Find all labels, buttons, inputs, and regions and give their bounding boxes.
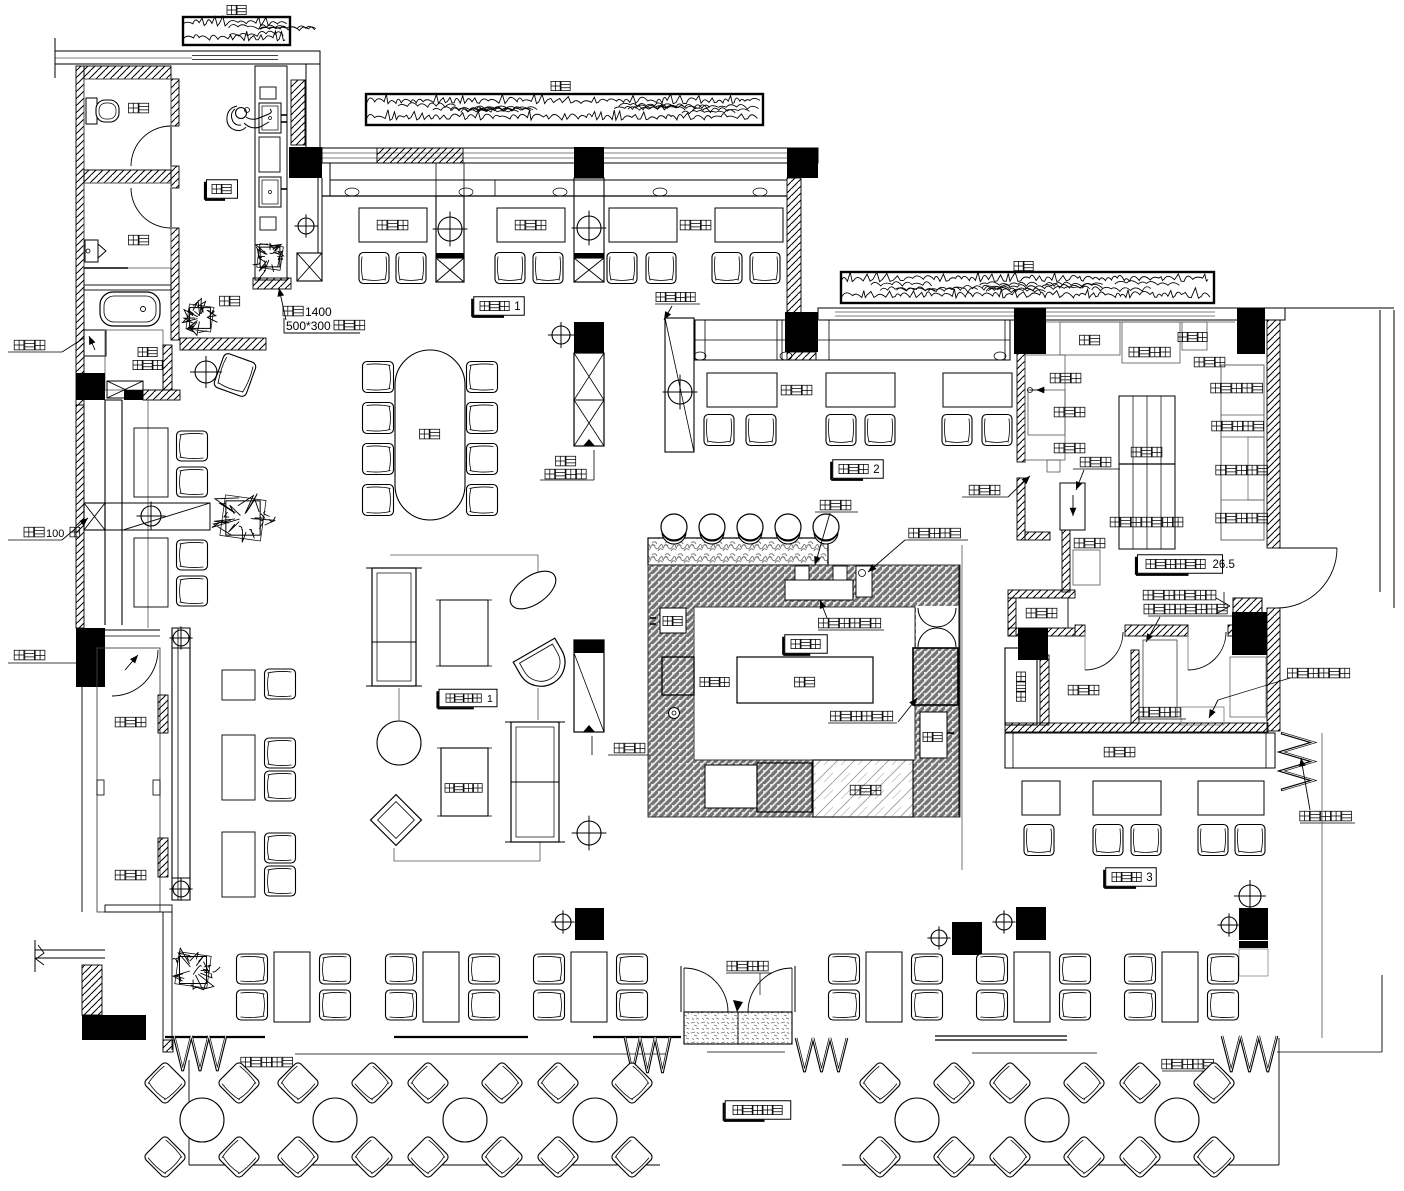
svg-text:1: 1 (487, 693, 493, 705)
svg-text:26.5: 26.5 (1213, 559, 1235, 571)
svg-text:3: 3 (1146, 872, 1152, 884)
svg-text:1: 1 (514, 301, 520, 313)
svg-text:2: 2 (873, 464, 879, 476)
svg-text:1400: 1400 (305, 305, 332, 319)
svg-text:500*300: 500*300 (286, 319, 331, 333)
svg-text:100: 100 (46, 528, 64, 540)
